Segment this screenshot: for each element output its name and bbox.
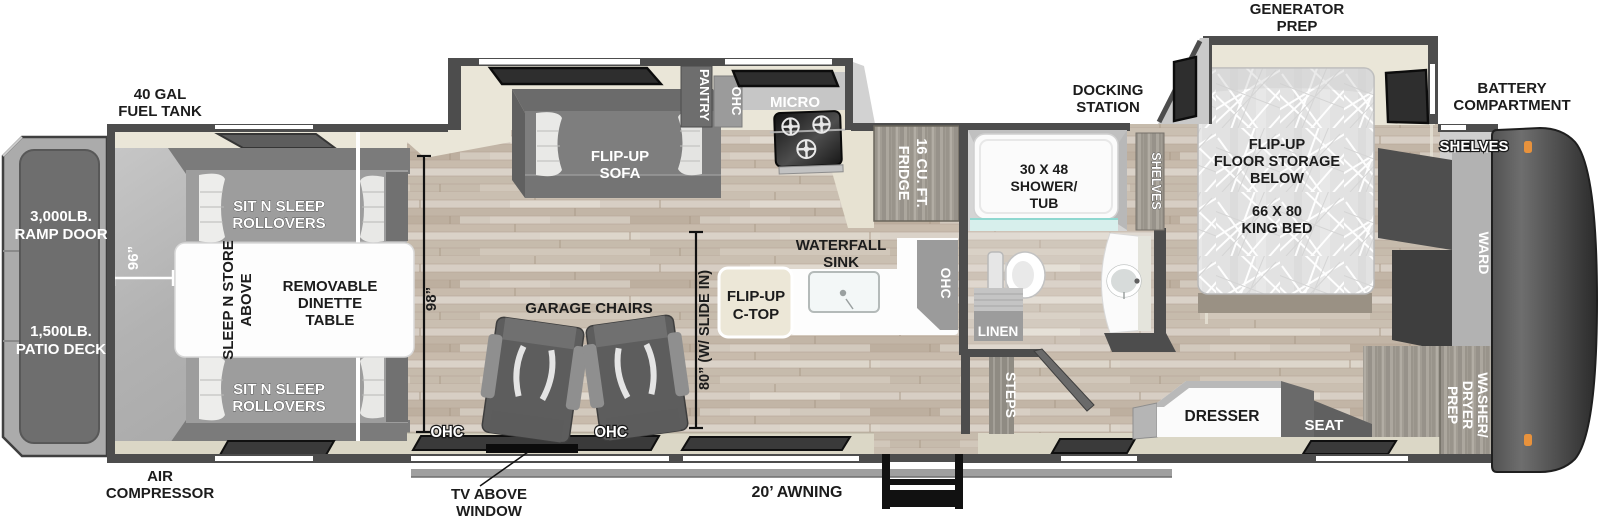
svg-text:ABOVE: ABOVE xyxy=(238,273,255,326)
svg-text:REMOVABLE: REMOVABLE xyxy=(283,278,378,295)
svg-text:16 CU. FT.: 16 CU. FT. xyxy=(913,138,929,207)
svg-text:PREP: PREP xyxy=(1277,18,1318,35)
svg-text:SHOWER/: SHOWER/ xyxy=(1011,178,1078,194)
svg-text:DRYER: DRYER xyxy=(1460,381,1476,430)
svg-text:BELOW: BELOW xyxy=(1250,171,1304,187)
svg-text:96”: 96” xyxy=(125,246,142,270)
svg-text:WINDOW: WINDOW xyxy=(456,503,523,518)
svg-text:FLOOR STORAGE: FLOOR STORAGE xyxy=(1214,154,1341,170)
svg-text:PATIO DECK: PATIO DECK xyxy=(16,341,106,358)
svg-text:3,000LB.: 3,000LB. xyxy=(30,208,92,225)
svg-text:STATION: STATION xyxy=(1076,99,1140,116)
svg-text:SIT N SLEEP: SIT N SLEEP xyxy=(233,381,325,398)
svg-text:SIT N SLEEP: SIT N SLEEP xyxy=(233,198,325,215)
svg-text:ROLLOVERS: ROLLOVERS xyxy=(232,398,325,415)
svg-text:OHC: OHC xyxy=(938,267,954,298)
svg-text:RAMP DOOR: RAMP DOOR xyxy=(14,226,107,243)
svg-text:WARD: WARD xyxy=(1476,232,1492,275)
svg-text:OHC: OHC xyxy=(729,87,744,117)
svg-text:ROLLOVERS: ROLLOVERS xyxy=(232,215,325,232)
svg-text:COMPRESSOR: COMPRESSOR xyxy=(106,485,215,502)
svg-text:DRESSER: DRESSER xyxy=(1185,408,1260,425)
svg-text:FUEL TANK: FUEL TANK xyxy=(118,103,202,120)
svg-text:OHC: OHC xyxy=(595,424,628,441)
svg-text:DOCKING: DOCKING xyxy=(1073,82,1144,99)
svg-text:FLIP-UP: FLIP-UP xyxy=(1249,137,1306,153)
svg-text:SINK: SINK xyxy=(823,254,859,271)
svg-text:C-TOP: C-TOP xyxy=(733,306,779,323)
svg-text:GARAGE CHAIRS: GARAGE CHAIRS xyxy=(525,300,653,317)
svg-text:TABLE: TABLE xyxy=(306,312,355,329)
svg-text:LINEN: LINEN xyxy=(978,324,1019,339)
svg-text:MICRO: MICRO xyxy=(770,94,820,111)
svg-text:80” (W/ SLIDE IN): 80” (W/ SLIDE IN) xyxy=(697,270,713,390)
svg-text:STEPS: STEPS xyxy=(1003,372,1019,418)
svg-text:KING BED: KING BED xyxy=(1242,221,1313,237)
svg-text:FLIP-UP: FLIP-UP xyxy=(591,148,649,165)
svg-text:GENERATOR: GENERATOR xyxy=(1250,1,1345,18)
svg-text:20’ AWNING: 20’ AWNING xyxy=(752,484,843,501)
svg-text:TV ABOVE: TV ABOVE xyxy=(451,486,527,503)
svg-text:AIR: AIR xyxy=(147,468,173,485)
svg-text:1,500LB.: 1,500LB. xyxy=(30,323,92,340)
svg-text:SHELVES: SHELVES xyxy=(1149,152,1163,209)
svg-text:WASHER/: WASHER/ xyxy=(1475,372,1491,437)
svg-text:40 GAL: 40 GAL xyxy=(134,86,187,103)
svg-text:PANTRY: PANTRY xyxy=(697,69,712,121)
svg-text:SEAT: SEAT xyxy=(1305,417,1344,434)
svg-text:FLIP-UP: FLIP-UP xyxy=(727,288,785,305)
svg-text:SHELVES: SHELVES xyxy=(1440,138,1509,155)
svg-text:COMPARTMENT: COMPARTMENT xyxy=(1453,97,1570,114)
svg-text:DINETTE: DINETTE xyxy=(298,295,362,312)
svg-text:30 X 48: 30 X 48 xyxy=(1020,161,1068,177)
svg-text:98”: 98” xyxy=(423,287,440,311)
svg-text:OHC: OHC xyxy=(431,424,464,441)
svg-text:FRIDGE: FRIDGE xyxy=(895,146,911,201)
svg-text:66 X 80: 66 X 80 xyxy=(1252,204,1302,220)
svg-text:SLEEP N STORE: SLEEP N STORE xyxy=(220,240,237,359)
svg-text:WATERFALL: WATERFALL xyxy=(796,237,887,254)
svg-text:PREP: PREP xyxy=(1445,386,1461,424)
svg-text:BATTERY: BATTERY xyxy=(1477,80,1546,97)
svg-text:SOFA: SOFA xyxy=(600,165,641,182)
svg-text:TUB: TUB xyxy=(1030,195,1059,211)
